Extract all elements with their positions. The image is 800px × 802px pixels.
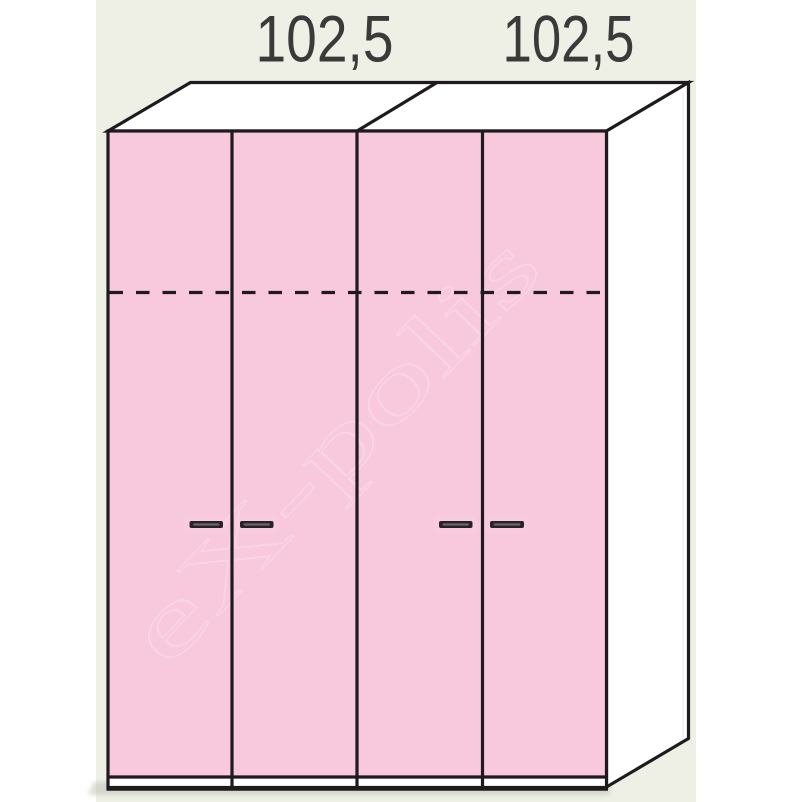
- svg-text:102,5: 102,5: [503, 2, 635, 76]
- svg-text:102,5: 102,5: [256, 2, 394, 76]
